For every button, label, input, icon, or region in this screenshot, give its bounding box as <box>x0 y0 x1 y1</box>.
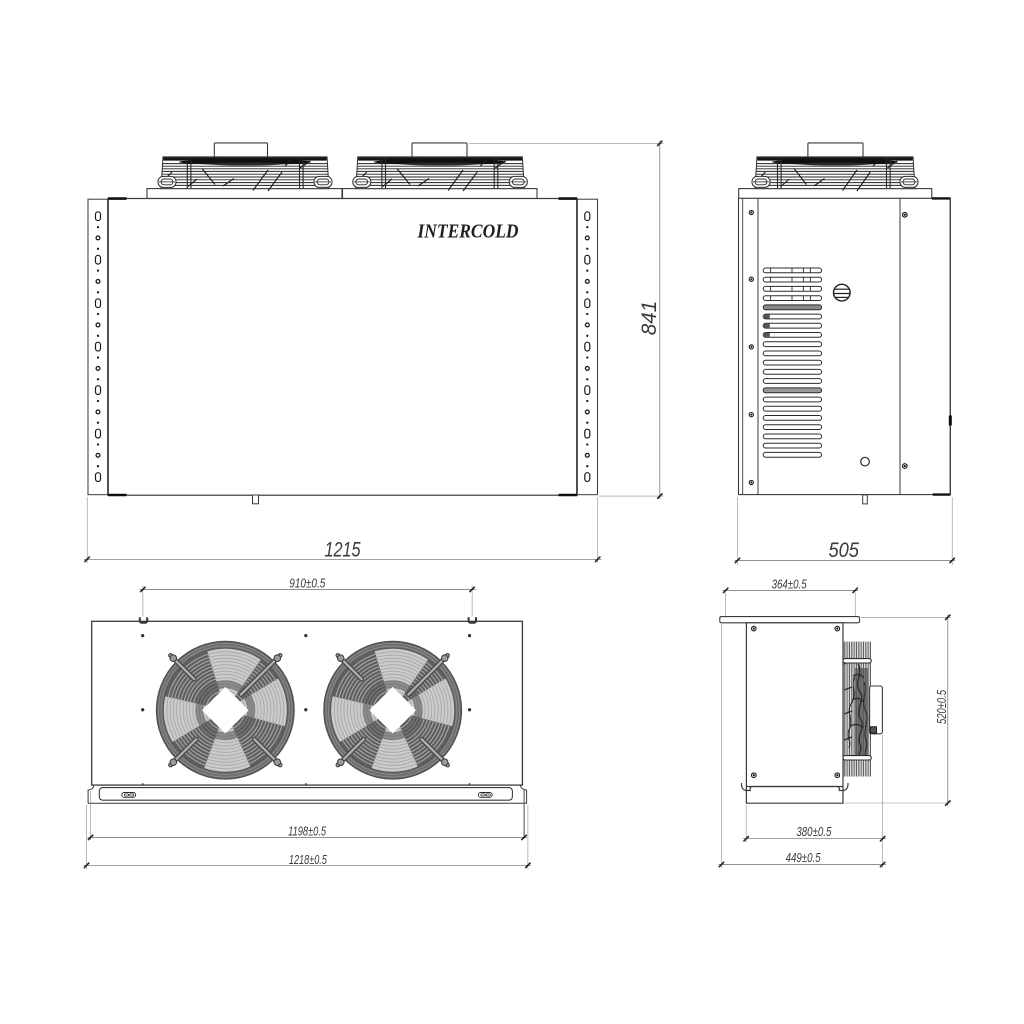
svg-text:505: 505 <box>828 538 859 562</box>
svg-text:520±0.5: 520±0.5 <box>934 689 949 724</box>
svg-text:INTERCOLD: INTERCOLD <box>417 221 519 242</box>
svg-text:380±0.5: 380±0.5 <box>796 824 832 839</box>
svg-text:1215: 1215 <box>325 537 362 561</box>
svg-text:364±0.5: 364±0.5 <box>772 577 808 592</box>
svg-text:910±0.5: 910±0.5 <box>289 576 326 591</box>
svg-text:449±0.5: 449±0.5 <box>786 850 822 865</box>
svg-text:1218±0.5: 1218±0.5 <box>289 852 328 867</box>
svg-text:841: 841 <box>637 301 661 336</box>
svg-text:1198±0.5: 1198±0.5 <box>288 823 327 838</box>
